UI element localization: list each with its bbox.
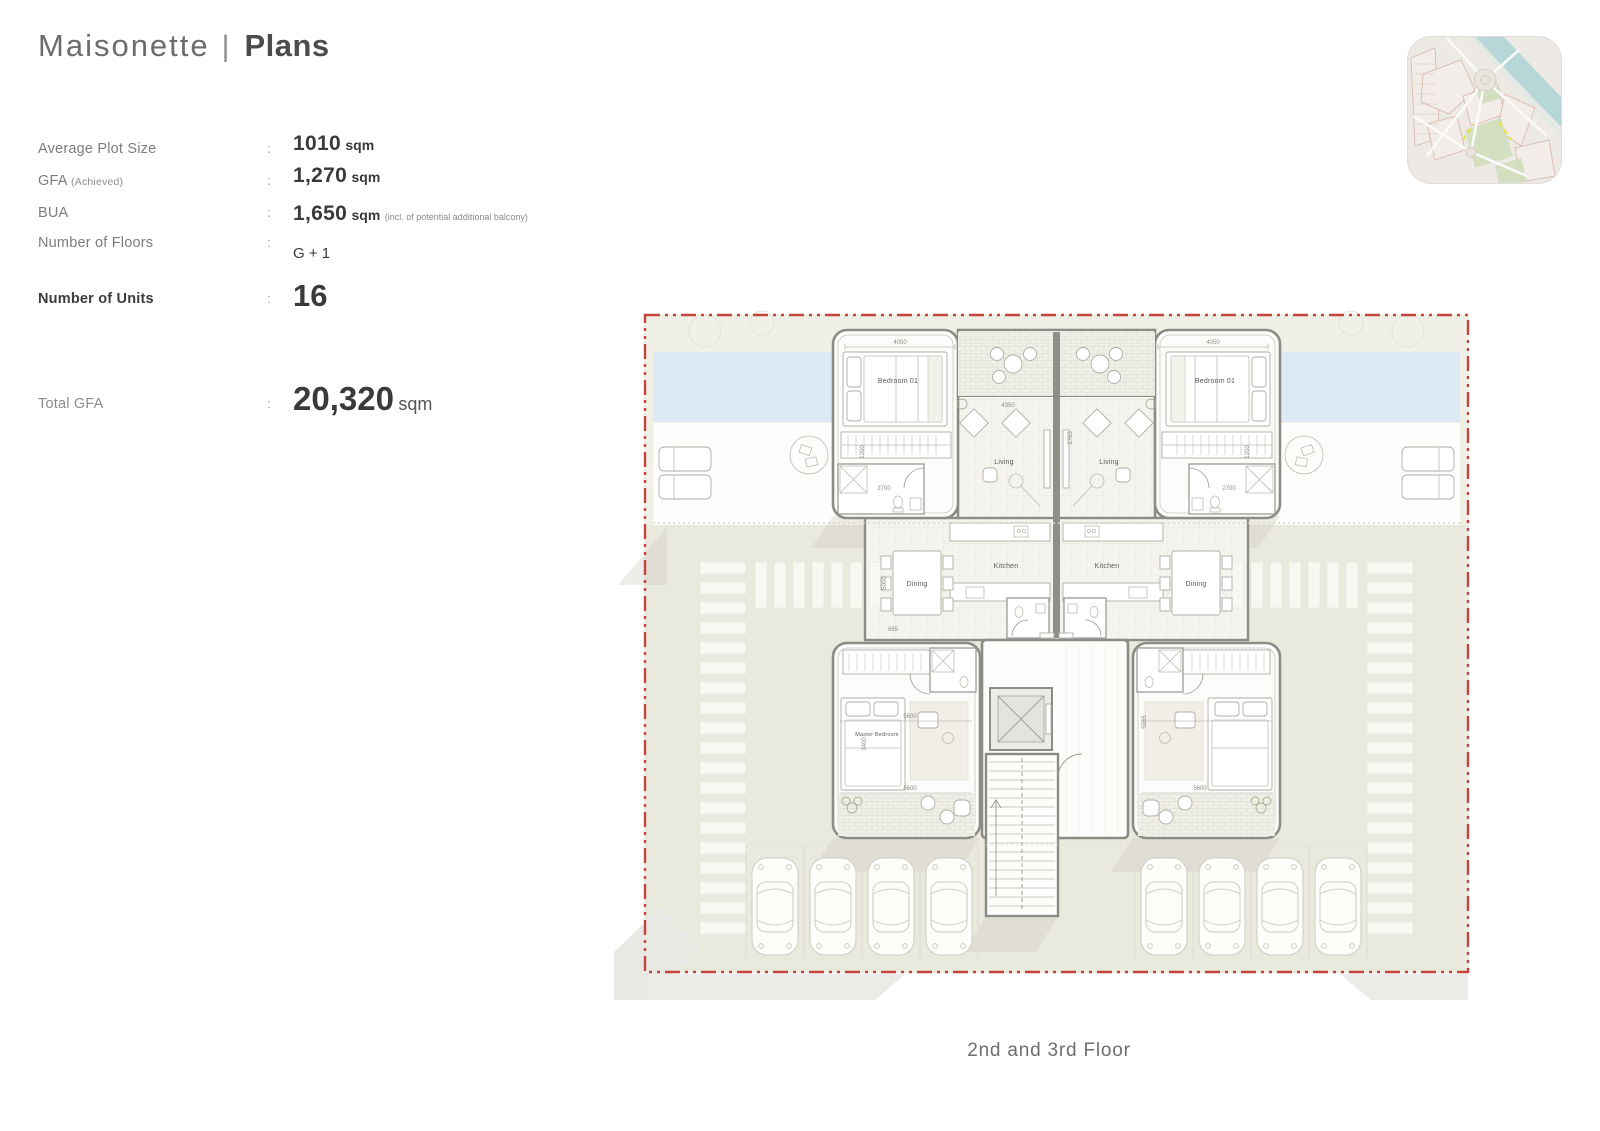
plan-caption: 2nd and 3rd Floor <box>614 1040 1484 1062</box>
room-label-master-bedroom: Master Bedroom <box>855 732 899 738</box>
spec-colon: : <box>267 396 271 411</box>
spec-row-number-of-floors: Number of Floors : G + 1 <box>38 228 638 268</box>
pool-left <box>653 352 833 422</box>
dimension-label: 5000 <box>882 576 888 590</box>
spec-row-number-of-units: Number of Units : 16 <box>38 278 638 318</box>
floor-plan-drawing: Bedroom 01 Bedroom 01 Living Living Kitc… <box>614 300 1484 1000</box>
spec-label: Average Plot Size <box>38 141 156 157</box>
spec-panel: Average Plot Size : 1010 sqm GFA (Achiev… <box>38 0 638 470</box>
spec-label: Number of Units <box>38 291 154 307</box>
spec-value: 1010 sqm <box>293 132 374 156</box>
spec-label: BUA <box>38 205 68 221</box>
dimension-label: 5965 <box>1142 715 1148 729</box>
spec-value: 20,320 sqm <box>293 380 432 418</box>
spec-value: 1,270 sqm <box>293 164 380 188</box>
dimension-label: 3765 <box>1068 431 1074 445</box>
dimension-label: 5600 <box>903 786 917 792</box>
room-label-dining-right: Dining <box>1185 581 1206 588</box>
room-label-dining-left: Dining <box>906 581 927 588</box>
spec-value: 16 <box>293 278 327 314</box>
room-label-kitchen-right: Kitchen <box>1095 563 1120 570</box>
spec-value-note: (incl. of potential additional balcony) <box>385 212 528 222</box>
dimension-label: 4350 <box>1001 403 1015 409</box>
dimension-label: 4050 <box>1206 340 1220 346</box>
spec-value: 1,650 sqm (incl. of potential additional… <box>293 202 528 226</box>
dimension-label: 665 <box>888 627 899 633</box>
spec-value: G + 1 <box>293 245 330 263</box>
room-label-living-right: Living <box>1099 459 1119 466</box>
spec-label-note: (Achieved) <box>71 176 123 188</box>
floor-plan: Bedroom 01 Bedroom 01 Living Living Kitc… <box>614 300 1484 1000</box>
elevator <box>990 688 1052 750</box>
spec-colon: : <box>267 235 271 250</box>
spec-colon: : <box>267 205 271 220</box>
dimension-label: 2700 <box>1222 486 1236 492</box>
brochure-page: Maisonette|Plans <box>0 0 1600 1131</box>
dimension-label: 5600 <box>1193 786 1207 792</box>
spec-label: Total GFA <box>38 396 103 412</box>
spec-label: GFA <box>38 173 67 189</box>
spec-row-total-gfa: Total GFA : 20,320 sqm <box>38 380 638 420</box>
dimension-label: 1200 <box>860 445 866 459</box>
spec-label: Number of Floors <box>38 235 153 251</box>
minimap-art <box>1407 36 1562 184</box>
dimension-label: 5600 <box>903 714 917 720</box>
room-label-bedroom01-left: Bedroom 01 <box>878 378 918 385</box>
dimension-label: 3400 <box>862 737 868 751</box>
location-minimap <box>1407 36 1562 184</box>
dimension-label: 2700 <box>877 486 891 492</box>
dimension-label: 1200 <box>1245 445 1251 459</box>
pool-right <box>1280 352 1460 422</box>
minimap-image <box>1407 36 1562 184</box>
spec-colon: : <box>267 141 271 156</box>
room-label-bedroom01-right: Bedroom 01 <box>1195 378 1235 385</box>
dimension-label: 4050 <box>893 340 907 346</box>
spec-colon: : <box>267 173 271 188</box>
spec-colon: : <box>267 291 271 306</box>
room-label-living-left: Living <box>994 459 1014 466</box>
room-label-kitchen-left: Kitchen <box>994 563 1019 570</box>
